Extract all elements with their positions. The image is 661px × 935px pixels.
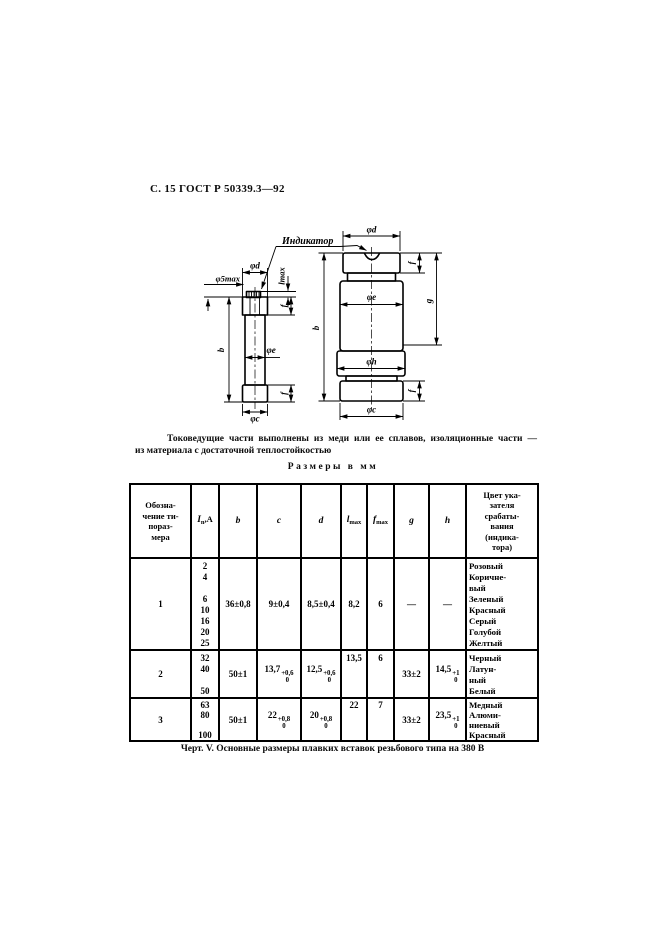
dim-label-f-right-bottom: f [406,388,416,392]
header-b: b [219,484,257,558]
cell-h-2: 14,5+10 [429,650,466,698]
cell-lmax-3: 22 [341,698,367,741]
cell-g-1: — [394,558,429,650]
cell-currents-3: 6380 100 [191,698,219,741]
cell-currents-2: 3240 50 [191,650,219,698]
cell-b-2: 50±1 [219,650,257,698]
cell-colors-1: РозовыйКоричне-выйЗеленыйКрасныйСерыйГол… [466,558,538,650]
cell-g-3: 33±2 [394,698,429,741]
header-fmax: fmax [367,484,394,558]
cell-d-2: 12,5+0,60 [301,650,341,698]
dim-label-phic-left: φc [250,414,259,424]
cell-fmax-2: 6 [367,650,394,698]
figure-caption: Черт. V. Основные размеры плавких вставо… [100,744,565,754]
right-fuse-outline [337,247,405,409]
header-current: In,А [191,484,219,558]
page-header: С. 15 ГОСТ Р 50339.3—92 [150,183,285,195]
header-indicator-color: Цвет ука-зателясрабаты-вания(индика-тора… [466,484,538,558]
cell-fmax-3: 7 [367,698,394,741]
table-row-size3: 3 6380 100 50±1 22+0,80 20+0,80 22 7 33±… [130,698,538,741]
dim-label-phid-left: φd [250,261,260,271]
dim-label-f-left-bottom: f [279,391,289,395]
header-g: g [394,484,429,558]
left-fuse-dimensions: φd φ5max lmax b φe f f φc [204,261,296,424]
fuse-link-drawing: φd φ5max lmax b φe f f φc Индикатор [185,225,465,430]
header-h: h [429,484,466,558]
cell-c-2: 13,7+0,60 [257,650,301,698]
cell-fmax-1: 6 [367,558,394,650]
cell-lmax-2: 13,5 [341,650,367,698]
gost-document-page: { "page": { "header": "С. 15 ГОСТ Р 5033… [0,0,661,935]
cell-mark-3: 3 [130,698,191,741]
dim-label-phie-left: φe [267,345,276,355]
table-header-row: Обозна-чение ти-пораз-мера In,А b c d lm… [130,484,538,558]
dim-label-g: g [424,298,434,304]
cell-colors-2: ЧерныйЛатун-ныйБелый [466,650,538,698]
dim-label-b-right: b [311,325,321,330]
material-note-line2: из материала с достаточной теплостойкост… [135,446,537,458]
cell-h-3: 23,5+10 [429,698,466,741]
right-fuse-dimensions: φd b g f f φe φh φc [311,225,442,420]
cell-g-2: 33±2 [394,650,429,698]
dim-label-phie-right: φe [367,292,376,302]
dim-label-phih: φh [366,357,376,367]
material-note: Токоведущие части выполнены из меди или … [135,434,537,457]
cell-mark-1: 1 [130,558,191,650]
cell-d-1: 8,5±0,4 [301,558,341,650]
header-d: d [301,484,341,558]
header-lmax: lmax [341,484,367,558]
dim-label-phic-right: φc [367,405,376,415]
table-row-size2: 2 3240 50 50±1 13,7+0,60 12,5+0,60 13,5 … [130,650,538,698]
header-mark: Обозна-чение ти-пораз-мера [130,484,191,558]
sizes-heading: Размеры в мм [129,462,537,472]
cell-lmax-1: 8,2 [341,558,367,650]
dim-label-phid-right: φd [367,225,377,235]
material-note-line1: Токоведущие части выполнены из меди или … [135,434,537,446]
cell-mark-2: 2 [130,650,191,698]
cell-b-1: 36±0,8 [219,558,257,650]
cell-b-3: 50±1 [219,698,257,741]
header-c: c [257,484,301,558]
cell-colors-3: МедныйАлюми-ниевыйКрасный [466,698,538,741]
cell-d-3: 20+0,80 [301,698,341,741]
dim-label-f-left-top: f [279,303,289,307]
left-fuse-outline [243,287,268,409]
dimensions-table: Обозна-чение ти-пораз-мера In,А b c d lm… [129,483,539,742]
cell-c-3: 22+0,80 [257,698,301,741]
cell-c-1: 9±0,4 [257,558,301,650]
table-row-size1: 1 24 610162025 36±0,8 9±0,4 8,5±0,4 8,2 … [130,558,538,650]
cell-currents-1: 24 610162025 [191,558,219,650]
dim-label-phi5max: φ5max [216,274,241,284]
dim-label-b-left: b [216,347,226,352]
dim-label-f-right-top: f [406,260,416,264]
indicator-label: Индикатор [281,236,333,247]
cell-h-1: — [429,558,466,650]
dim-label-lmax: lmax [277,267,287,285]
